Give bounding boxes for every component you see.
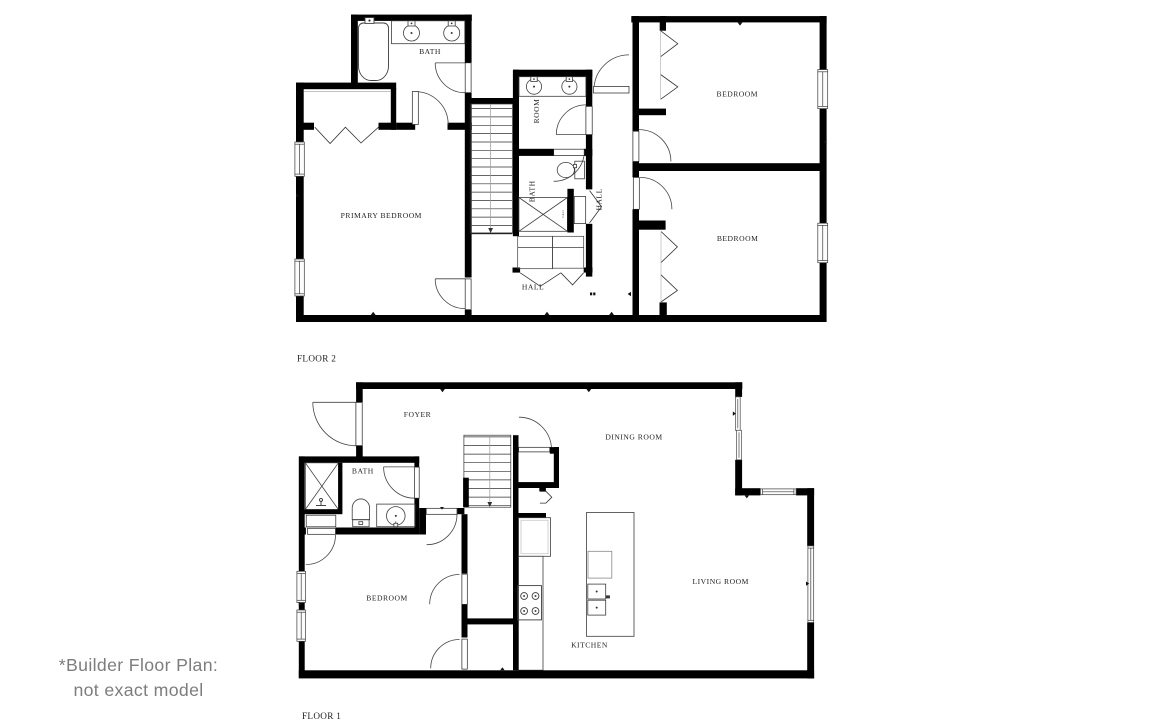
svg-text:KITCHEN: KITCHEN xyxy=(571,640,608,649)
svg-text:FLOOR 2: FLOOR 2 xyxy=(297,354,336,364)
svg-text:HALL: HALL xyxy=(522,282,544,291)
svg-text:BEDROOM: BEDROOM xyxy=(366,593,407,602)
svg-text:LIVING ROOM: LIVING ROOM xyxy=(693,577,749,586)
svg-text:not exact model: not exact model xyxy=(73,680,203,700)
svg-text:BEDROOM: BEDROOM xyxy=(717,90,758,99)
svg-text:BATH: BATH xyxy=(528,180,537,202)
svg-text:CLO: CLO xyxy=(561,210,565,218)
svg-text:HALL: HALL xyxy=(595,188,604,210)
svg-text:*Builder Floor Plan:: *Builder Floor Plan: xyxy=(59,655,218,675)
svg-text:FLOOR 1: FLOOR 1 xyxy=(302,711,341,720)
svg-text:BEDROOM: BEDROOM xyxy=(717,234,758,243)
svg-text:BATH: BATH xyxy=(352,466,374,475)
svg-text:BATH: BATH xyxy=(419,47,441,56)
svg-text:ROOM: ROOM xyxy=(532,99,541,124)
svg-text:DINING ROOM: DINING ROOM xyxy=(605,432,662,441)
svg-text:FOYER: FOYER xyxy=(404,410,432,419)
svg-text:PRIMARY BEDROOM: PRIMARY BEDROOM xyxy=(341,211,422,220)
